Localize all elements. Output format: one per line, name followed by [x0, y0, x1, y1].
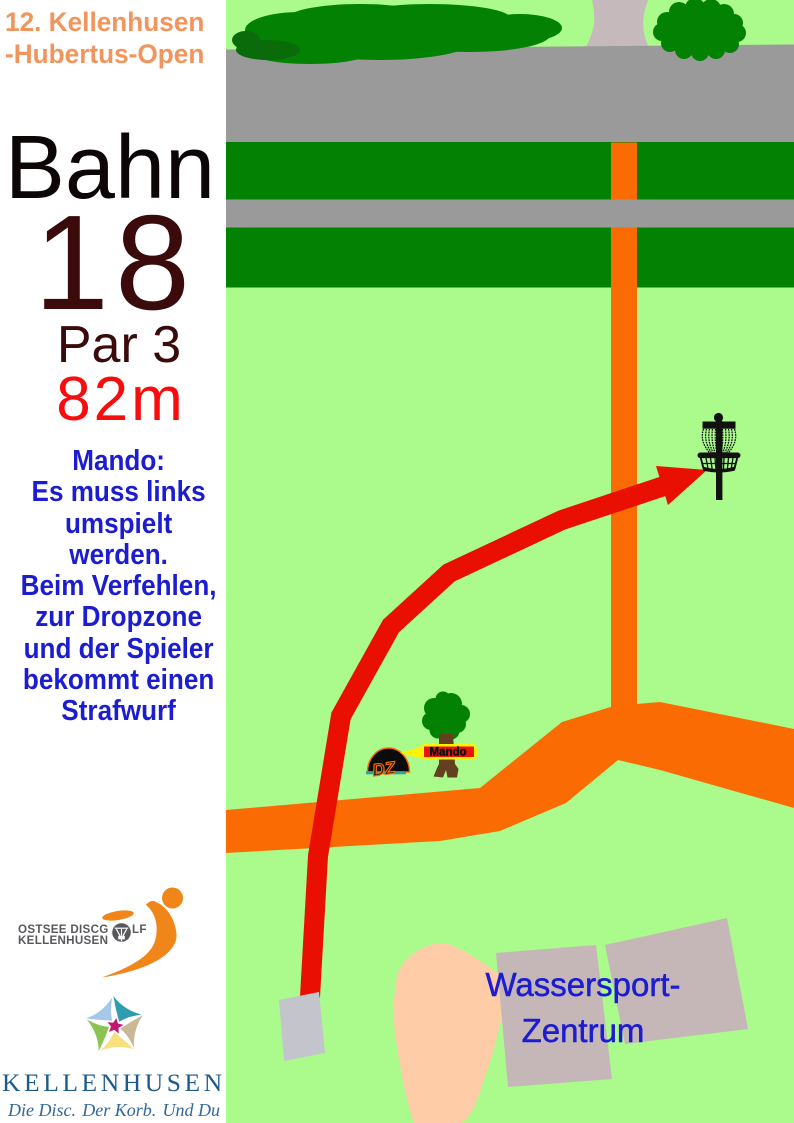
svg-text:Mando: Mando	[429, 747, 466, 759]
svg-text:DZ: DZ	[371, 758, 397, 780]
